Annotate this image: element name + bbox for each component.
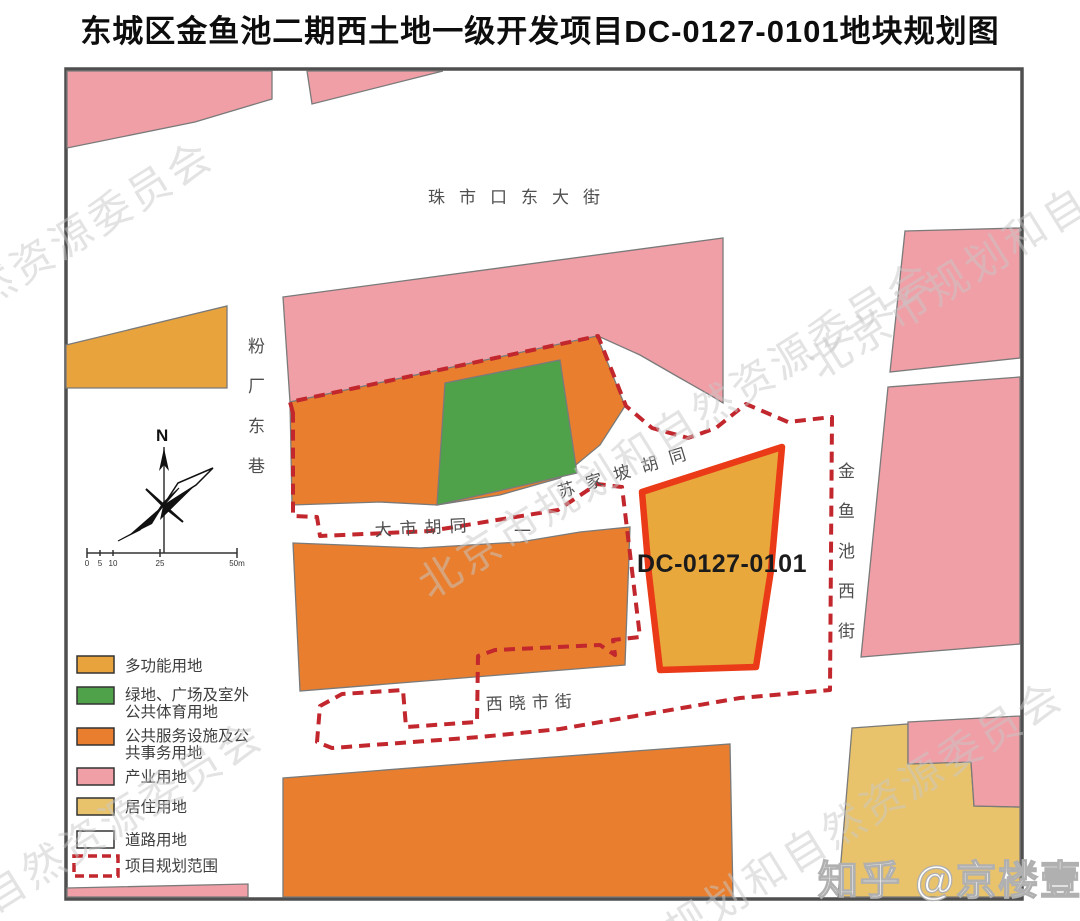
scale-tick-50m: 50m xyxy=(229,559,245,568)
plot-id-label: DC-0127-0101 xyxy=(637,550,807,578)
legend-swatch-public-service xyxy=(77,728,114,745)
compass-north-label: N xyxy=(156,426,168,445)
scale-tick-0: 0 xyxy=(85,559,90,568)
street-label-xixiaoshi-st: 西晓市街 xyxy=(485,692,578,714)
legend-label-green-space-2: 公共体育用地 xyxy=(125,703,218,721)
legend-swatch-industry xyxy=(77,768,114,785)
scale-tick-10: 10 xyxy=(109,559,118,568)
scale-tick-25: 25 xyxy=(156,559,165,568)
legend-label-project-boundary: 项目规划范围 xyxy=(125,857,218,875)
legend-label-green-space-1: 绿地、广场及室外 xyxy=(125,686,249,704)
legend-swatch-multi-use xyxy=(77,656,114,673)
scale-tick-5: 5 xyxy=(98,559,103,568)
legend-label-multi-use: 多功能用地 xyxy=(125,657,203,675)
street-label-zhushikou-east-st: 珠市口东大街 xyxy=(428,188,614,207)
legend-swatch-green-space xyxy=(77,687,114,704)
industry-parcel-right-lower xyxy=(861,377,1020,657)
watermark-zhihu: 知乎 @京楼壹号 xyxy=(818,859,1080,903)
